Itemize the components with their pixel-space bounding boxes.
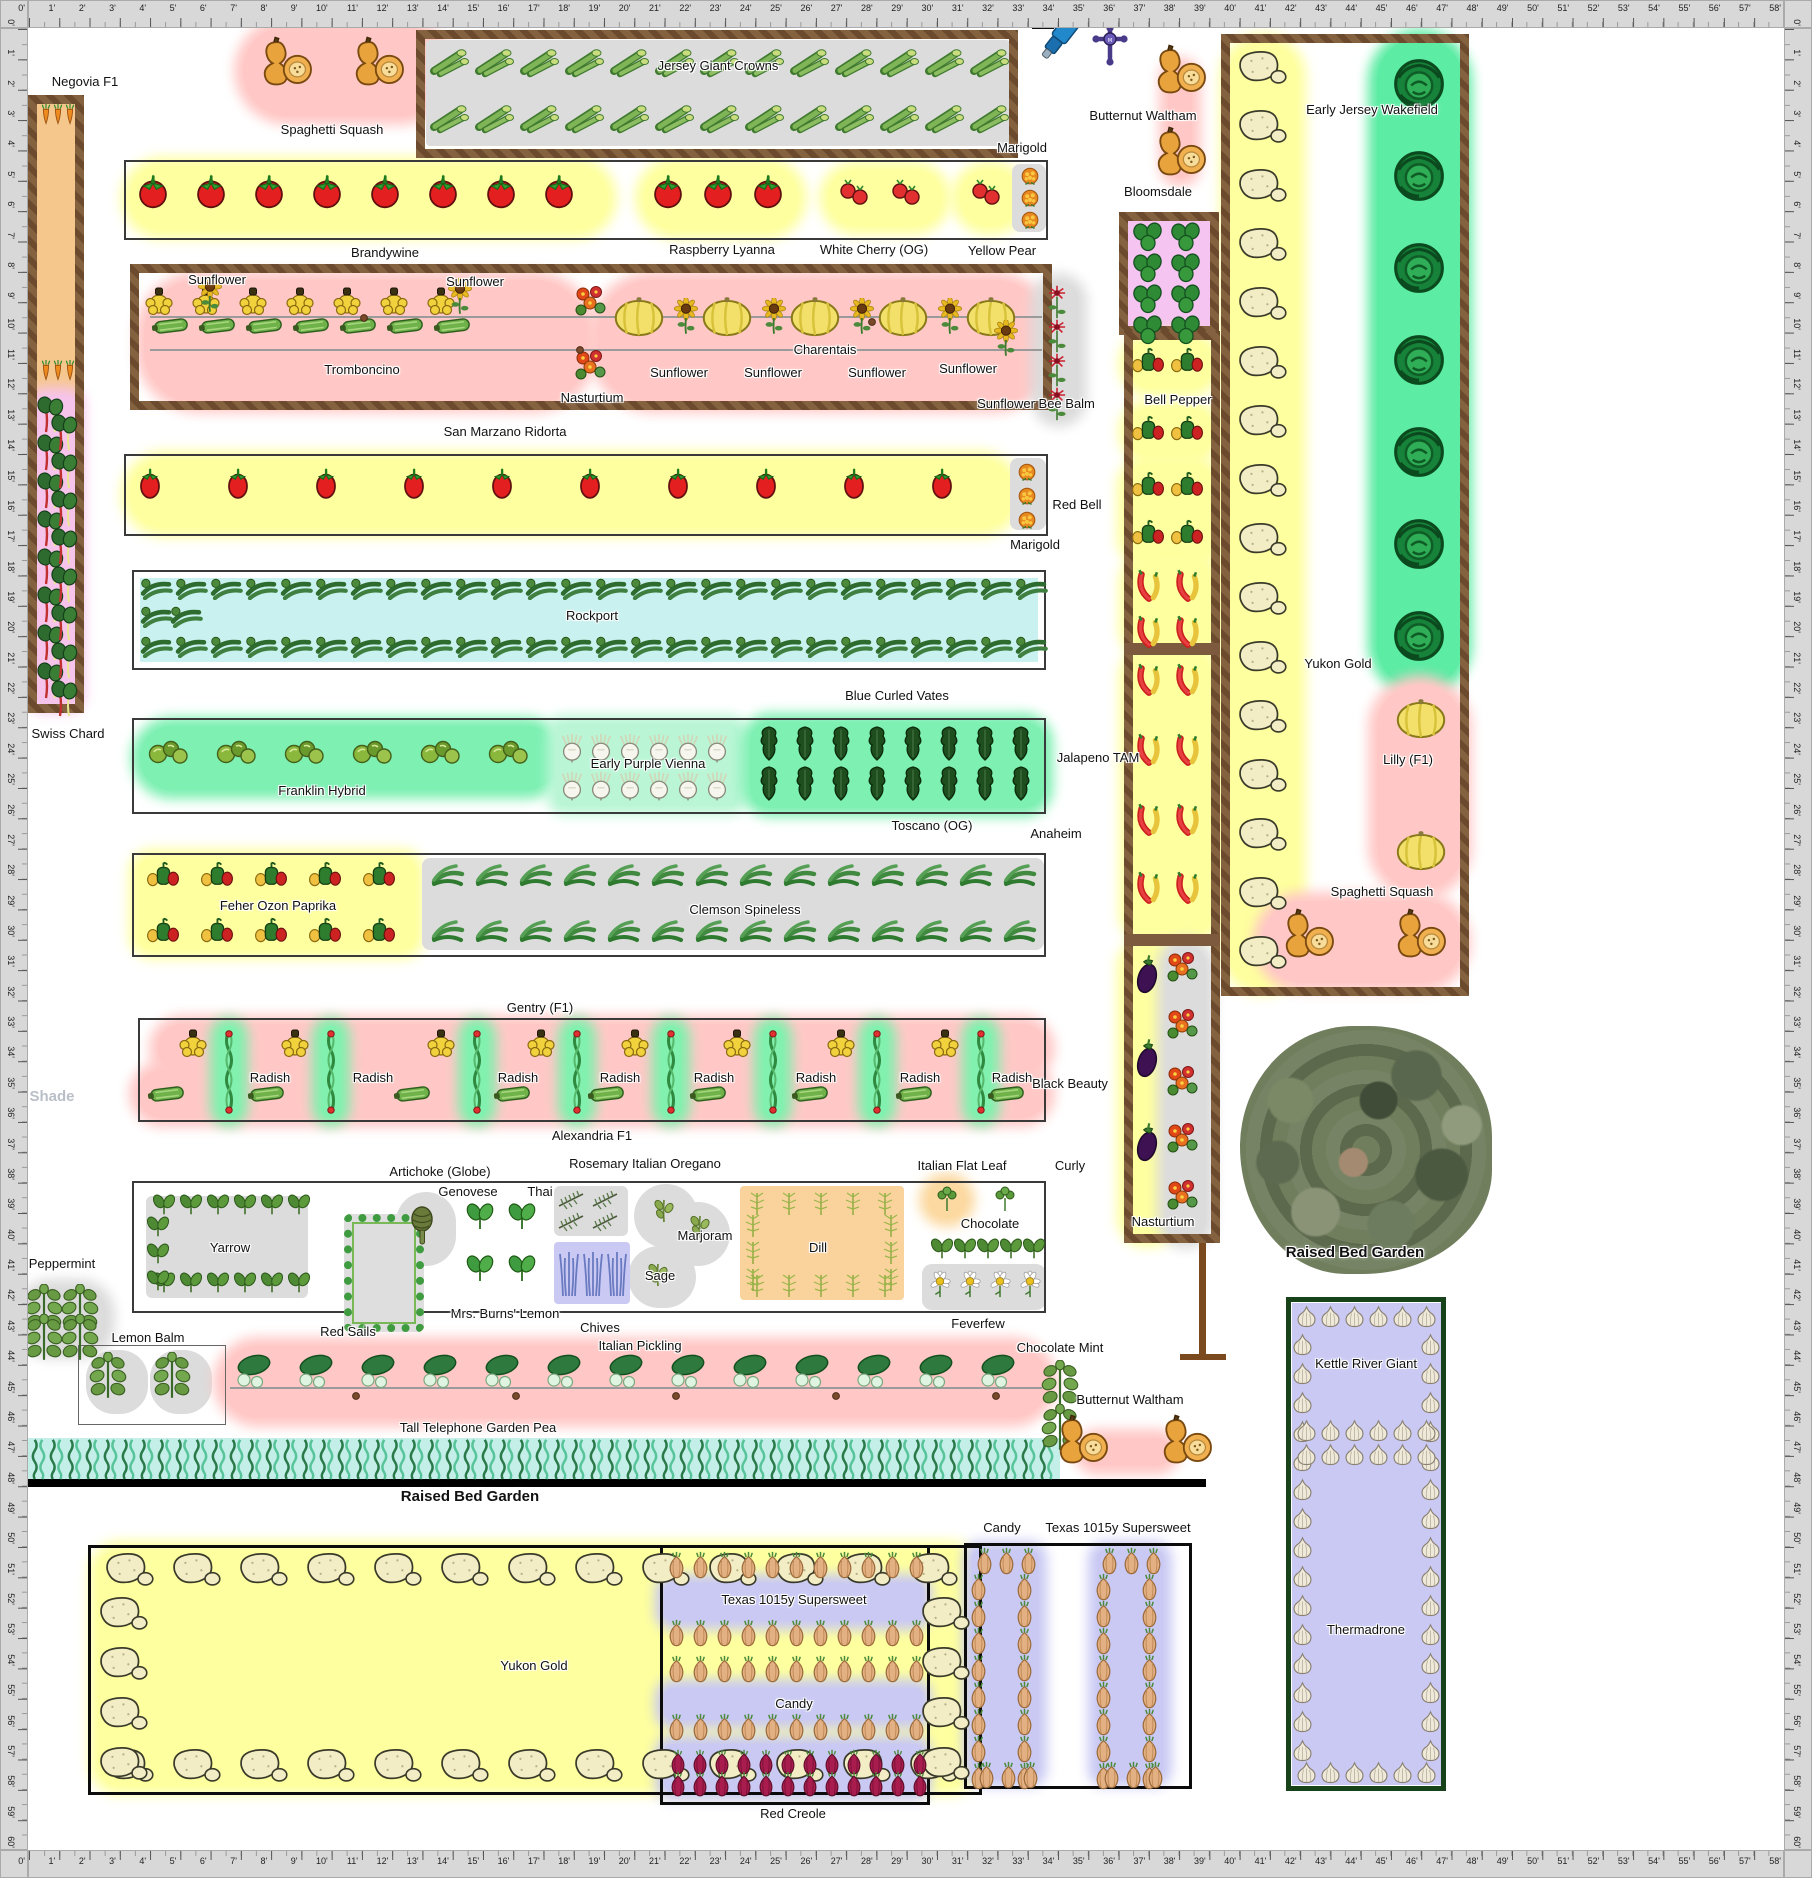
ruler-tick-label: 11' xyxy=(347,1856,358,1866)
ruler-tick-label: 33' xyxy=(1012,3,1024,13)
onion-icon xyxy=(666,1618,687,1648)
kale-icon xyxy=(900,764,926,802)
ruler-tick-label: 44' xyxy=(6,1350,16,1362)
potato-icon xyxy=(100,1548,154,1590)
ruler-tick-label: 35' xyxy=(1073,3,1085,13)
ruler-tick-label: 35' xyxy=(1073,1856,1085,1866)
chili-icon xyxy=(1131,564,1167,606)
ruler-tick-label: 15' xyxy=(6,470,16,482)
kale-icon xyxy=(1008,764,1034,802)
chard-icon xyxy=(50,604,78,642)
onion-icon xyxy=(762,1712,783,1742)
label-alexandria: Alexandria F1 xyxy=(552,1128,632,1143)
ruler-tick-label: 56' xyxy=(1792,1715,1802,1727)
ruler-tick-label: 9' xyxy=(291,3,298,13)
ruler-tick-label: 39' xyxy=(1792,1199,1802,1211)
ruler-tick-label: 18' xyxy=(558,3,570,13)
ruler-tick-label: 31' xyxy=(952,3,964,13)
label-genovese: Genovese xyxy=(438,1184,497,1199)
garlic-icon xyxy=(1292,1506,1313,1531)
label-thai: Thai xyxy=(527,1184,552,1199)
ruler-tick-label: 24' xyxy=(740,1856,752,1866)
ruler-tick-label: 5' xyxy=(170,1856,177,1866)
label-candy-2: Candy xyxy=(983,1520,1021,1535)
ruler-tick-label: 22' xyxy=(679,3,691,13)
beebalm-icon xyxy=(1044,352,1070,388)
pea-icon xyxy=(948,1438,965,1480)
butternut-icon xyxy=(1150,44,1208,96)
asp-icon xyxy=(970,100,1010,134)
pea-icon xyxy=(642,1438,659,1480)
cuc-icon xyxy=(540,1354,582,1390)
ruler-tick-label: 54' xyxy=(1792,1654,1802,1666)
ruler-tick-label: 8' xyxy=(6,262,16,269)
ruler-tick-label: 51' xyxy=(1792,1563,1802,1575)
beebalm-icon xyxy=(1044,284,1070,320)
ruler-tick-label: 26' xyxy=(800,3,812,13)
onion-icon xyxy=(858,1712,879,1742)
ruler-tick-label: 31' xyxy=(1792,956,1802,968)
redonion-icon xyxy=(800,1770,820,1798)
cuc-icon xyxy=(230,1354,272,1390)
potato-icon xyxy=(94,1592,148,1634)
garlic-icon xyxy=(1368,1760,1389,1785)
ruler-tick-label: 30' xyxy=(922,1856,934,1866)
potato-icon xyxy=(569,1744,623,1786)
pepc-icon xyxy=(1170,346,1204,374)
ruler-tick-label: 0' xyxy=(18,3,25,13)
onion-icon xyxy=(834,1618,855,1648)
onion-icon xyxy=(786,1550,807,1580)
bean-icon xyxy=(873,634,909,658)
ruler-tick-label: 12' xyxy=(377,1856,389,1866)
garlic-icon xyxy=(1416,1760,1437,1785)
pepc-icon xyxy=(1131,346,1165,374)
pea-icon xyxy=(534,1438,551,1480)
ruler-tick-label: 59' xyxy=(6,1806,16,1818)
ruler-tick-label: 18' xyxy=(1792,561,1802,573)
kale-icon xyxy=(828,764,854,802)
melon-icon xyxy=(700,296,754,340)
sunf-icon xyxy=(992,320,1020,358)
garlic-icon xyxy=(1292,1535,1313,1560)
ruler-tick-label: 57' xyxy=(1739,3,1751,13)
onion-icon xyxy=(762,1550,783,1580)
cuc-icon xyxy=(664,1354,706,1390)
label-chocolate-mint: Chocolate Mint xyxy=(1017,1340,1104,1355)
pepc-icon xyxy=(362,916,396,944)
label-nasturtium-1: Nasturtium xyxy=(561,390,624,405)
ruler-tick-label: 52' xyxy=(1588,1856,1600,1866)
plum-icon xyxy=(485,464,519,502)
ruler-tick-label: 31' xyxy=(6,956,16,968)
ruler-tick-label: 10' xyxy=(316,3,328,13)
pea-icon xyxy=(840,1438,857,1480)
ruler-tick-label: 20' xyxy=(6,622,16,634)
spinach-icon xyxy=(1132,222,1164,252)
label-black-beauty: Black Beauty xyxy=(1032,1076,1108,1091)
ruler-tick-label: 13' xyxy=(6,409,16,421)
ruler-tick-label: 14' xyxy=(6,439,16,451)
chard-icon xyxy=(50,566,78,604)
ruler-tick-label: 25' xyxy=(770,1856,782,1866)
pea-icon xyxy=(1002,1438,1019,1480)
label-mrs-burns-lemon: Mrs. Burns' Lemon xyxy=(451,1306,560,1321)
leaf2-icon xyxy=(953,1236,977,1260)
label-radish-1: Radish xyxy=(250,1070,290,1085)
onion-icon xyxy=(666,1712,687,1742)
mint-icon xyxy=(1040,1360,1080,1408)
sunf-icon xyxy=(848,298,876,336)
okra-icon xyxy=(824,916,864,946)
ruler-tick-label: 12' xyxy=(377,3,389,13)
brus-icon xyxy=(352,738,394,768)
ruler-tick-label: 41' xyxy=(6,1259,16,1271)
label-red-sails: Red Sails xyxy=(320,1324,376,1339)
potato-icon xyxy=(301,1744,355,1786)
pea-icon xyxy=(84,1438,101,1480)
frond-icon xyxy=(740,1239,766,1265)
label-sunflower-5: Sunflower xyxy=(848,365,906,380)
ruler-tick-label: 36' xyxy=(1103,1856,1115,1866)
patty-icon xyxy=(176,1028,210,1058)
ruler-tick-label: 16' xyxy=(6,500,16,512)
zuc-icon xyxy=(197,312,239,338)
ruler-tick-label: 58' xyxy=(1769,1856,1781,1866)
basil-icon xyxy=(466,1202,494,1230)
label-candy-1: Candy xyxy=(775,1696,813,1711)
pea-icon xyxy=(966,1438,983,1480)
onion-icon xyxy=(714,1550,735,1580)
bean-icon xyxy=(768,576,804,600)
label-italian-pickling: Italian Pickling xyxy=(598,1338,681,1353)
potato-icon xyxy=(368,1548,422,1590)
pea-icon xyxy=(570,1438,587,1480)
ruler-tick-label: 44' xyxy=(1345,3,1357,13)
pea-icon xyxy=(822,1438,839,1480)
ruler-tick-label: 51' xyxy=(1557,1856,1569,1866)
ruler-tick-label: 26' xyxy=(800,1856,812,1866)
ruler-tick-label: 55' xyxy=(1678,3,1690,13)
ruler-tick-label: 40' xyxy=(1224,1856,1236,1866)
onion-icon xyxy=(1014,1599,1035,1629)
label-gentry: Gentry (F1) xyxy=(507,1000,573,1015)
ruler-tick-label: 53' xyxy=(1618,1856,1630,1866)
pea-icon xyxy=(732,1438,749,1480)
ruler-tick-label: 58' xyxy=(1769,3,1781,13)
garlic-icon xyxy=(1292,1361,1313,1386)
radstrip-icon xyxy=(870,1028,884,1116)
garlic-icon xyxy=(1296,1760,1317,1785)
sprig-icon xyxy=(650,1196,678,1224)
redonion-icon xyxy=(910,1770,930,1798)
radstrip-icon xyxy=(324,1028,338,1116)
ruler-tick-label: 27' xyxy=(831,1856,843,1866)
mint-icon xyxy=(24,1314,64,1362)
ruler-tick-label: 9' xyxy=(1792,293,1802,300)
tomato-icon xyxy=(367,172,403,210)
ruler-tick-label: 26' xyxy=(1792,804,1802,816)
kohl-icon xyxy=(587,768,615,802)
onion-icon xyxy=(1093,1707,1114,1737)
ruler-tick-label: 0' xyxy=(6,19,16,26)
potato-icon xyxy=(234,1744,288,1786)
garden-plan-area[interactable]: Negovia F1Spaghetti SquashJersey Giant C… xyxy=(28,28,1784,1850)
potato-icon xyxy=(435,1548,489,1590)
potato-icon xyxy=(1233,636,1287,678)
label-radish-4: Radish xyxy=(600,1070,640,1085)
asp-icon xyxy=(610,100,650,134)
label-nasturtium-2: Nasturtium xyxy=(1132,1214,1195,1229)
ruler-tick-label: 16' xyxy=(498,3,510,13)
eggp-icon xyxy=(1130,952,1164,996)
bean-icon xyxy=(383,634,419,658)
ruler-tick-label: 32' xyxy=(1792,986,1802,998)
bean-icon xyxy=(453,576,489,600)
cuc-icon xyxy=(602,1354,644,1390)
onion-icon xyxy=(968,1653,989,1683)
pepc-icon xyxy=(1170,414,1204,442)
frond-icon xyxy=(808,1272,834,1298)
kohl-icon xyxy=(703,768,731,802)
bean-icon xyxy=(348,634,384,658)
label-jalapeno-tam: Jalapeno TAM xyxy=(1057,750,1140,765)
ruler-tick-label: 47' xyxy=(1436,1856,1448,1866)
onion-icon xyxy=(1093,1599,1114,1629)
marig-icon xyxy=(1019,188,1041,210)
patty-icon xyxy=(618,1028,652,1058)
tomato-icon xyxy=(425,172,461,210)
pea-icon xyxy=(48,1438,65,1480)
potato-icon xyxy=(234,1548,288,1590)
onion-icon xyxy=(1093,1653,1114,1683)
tomato-icon xyxy=(700,172,736,210)
label-shade: Shade xyxy=(29,1088,74,1105)
ruler-tick-label: 44' xyxy=(1345,1856,1357,1866)
onion-icon xyxy=(858,1550,879,1580)
leaf2-icon xyxy=(152,1192,176,1216)
ruler-tick-label: 9' xyxy=(6,293,16,300)
onion-icon xyxy=(762,1654,783,1684)
kale-icon xyxy=(828,724,854,762)
ruler-tick-label: 60' xyxy=(6,1836,16,1848)
label-butternut-waltham-top: Butternut Waltham xyxy=(1089,108,1196,123)
onion-icon xyxy=(1139,1572,1160,1602)
pea-icon xyxy=(876,1438,893,1480)
asp-icon xyxy=(880,44,920,78)
label-clemson-spineless: Clemson Spineless xyxy=(689,902,800,917)
pea-icon xyxy=(444,1438,461,1480)
tomato-icon xyxy=(541,172,577,210)
pea-icon xyxy=(282,1438,299,1480)
frond-icon xyxy=(878,1212,904,1238)
ruler-tick-label: 38' xyxy=(6,1168,16,1180)
label-early-purple-vienna: Early Purple Vienna xyxy=(591,756,706,771)
pea-icon xyxy=(930,1438,947,1480)
ruler-tick-label: 26' xyxy=(6,804,16,816)
pea-icon xyxy=(210,1438,227,1480)
label-marjoram: Marjoram xyxy=(678,1228,733,1243)
garlic-icon xyxy=(1392,1418,1413,1443)
potato-icon xyxy=(94,1742,148,1784)
chili-icon xyxy=(1131,610,1167,652)
brus-icon xyxy=(148,738,190,768)
ruler-tick-label: 42' xyxy=(6,1290,16,1302)
ruler-tick-label: 34' xyxy=(1043,3,1055,13)
label-tromboncino: Tromboncino xyxy=(324,362,399,377)
onion-icon xyxy=(690,1618,711,1648)
okra-icon xyxy=(912,916,952,946)
label-tall-telephone-garden-pea: Tall Telephone Garden Pea xyxy=(400,1420,557,1435)
redonion-icon xyxy=(888,1770,908,1798)
label-rosemary-italian-oregano: Rosemary Italian Oregano xyxy=(569,1156,721,1171)
label-raspberry-lyanna: Raspberry Lyanna xyxy=(669,242,775,257)
garlic-icon xyxy=(1420,1361,1441,1386)
melon-icon xyxy=(788,296,842,340)
label-italian-flat-leaf: Italian Flat Leaf xyxy=(918,1158,1007,1173)
garlic-icon xyxy=(1392,1760,1413,1785)
ruler-tick-label: 34' xyxy=(6,1047,16,1059)
ruler-tick-label: 23' xyxy=(6,713,16,725)
daisy-icon xyxy=(1016,1270,1044,1300)
ruler-tick-label: 8' xyxy=(1792,262,1802,269)
parsley-icon xyxy=(992,1186,1018,1212)
chili-icon xyxy=(1131,658,1167,700)
kale-icon xyxy=(792,724,818,762)
potato-icon xyxy=(167,1548,221,1590)
garlic-icon xyxy=(1420,1709,1441,1734)
ruler-tick-label: 53' xyxy=(1618,3,1630,13)
garlic-icon xyxy=(1420,1535,1441,1560)
ruler-tick-label: 21' xyxy=(649,1856,661,1866)
ruler-tick-label: 5' xyxy=(170,3,177,13)
ruler-tick-label: 23' xyxy=(710,3,722,13)
bean-icon xyxy=(558,576,594,600)
label-marigold-top: Marigold xyxy=(997,140,1047,155)
asp-icon xyxy=(655,100,695,134)
chard-icon xyxy=(50,414,78,452)
ruler-tick-label: 58' xyxy=(1792,1776,1802,1788)
ruler-tick-label: 33' xyxy=(1012,1856,1024,1866)
onion-icon xyxy=(738,1654,759,1684)
valve-icon xyxy=(1092,24,1128,66)
kale-icon xyxy=(936,764,962,802)
kohl-icon xyxy=(558,768,586,802)
asp-icon xyxy=(475,100,515,134)
pea-icon xyxy=(1020,1438,1037,1480)
okra-icon xyxy=(912,860,952,890)
asp-icon xyxy=(520,100,560,134)
garlic-icon xyxy=(1420,1332,1441,1357)
ruler-tick-label: 4' xyxy=(139,3,146,13)
onion-icon xyxy=(786,1654,807,1684)
onion-icon xyxy=(968,1599,989,1629)
asp-icon xyxy=(925,44,965,78)
garlic-icon xyxy=(1368,1442,1389,1467)
bed-mid-column xyxy=(1124,331,1220,1243)
potato-icon xyxy=(167,1744,221,1786)
ruler-tick-label: 39' xyxy=(1194,3,1206,13)
chili-icon xyxy=(1170,658,1206,700)
bean-icon xyxy=(978,634,1014,658)
ruler-tick-label: 20' xyxy=(1792,622,1802,634)
ruler-tick-label: 34' xyxy=(1043,1856,1055,1866)
cuc-icon xyxy=(292,1354,334,1390)
label-yukon-gold-right: Yukon Gold xyxy=(1304,656,1371,671)
ruler-tick-label: 46' xyxy=(6,1411,16,1423)
kohl-icon xyxy=(558,730,586,764)
ruler-tick-label: 30' xyxy=(6,925,16,937)
ruler-tick-label: 7' xyxy=(230,1856,237,1866)
ruler-tick-label: 54' xyxy=(6,1654,16,1666)
pepc-icon xyxy=(254,916,288,944)
ruler-tick-label: 38' xyxy=(1164,3,1176,13)
marig-icon xyxy=(1016,462,1038,484)
frond-icon xyxy=(878,1239,904,1265)
ruler-tick-label: 43' xyxy=(1792,1320,1802,1332)
ruler-tick-label: 12' xyxy=(1792,379,1802,391)
cuc-icon xyxy=(478,1354,520,1390)
onion-icon xyxy=(690,1550,711,1580)
onion-icon xyxy=(666,1654,687,1684)
ruler-tick-label: 56' xyxy=(1709,1856,1721,1866)
onion-icon xyxy=(906,1550,927,1580)
leaf2-icon xyxy=(206,1192,230,1216)
cuc-icon xyxy=(850,1354,892,1390)
ruler-tick-label: 19' xyxy=(6,591,16,603)
ruler-tick-label: 1' xyxy=(49,1856,56,1866)
onion-icon xyxy=(690,1712,711,1742)
garden-planner-canvas[interactable]: Negovia F1Spaghetti SquashJersey Giant C… xyxy=(0,0,1812,1878)
onion-icon xyxy=(1101,1760,1122,1790)
ruler-tick-label: 36' xyxy=(1792,1107,1802,1119)
okra-icon xyxy=(868,860,908,890)
ruler-tick-label: 40' xyxy=(1224,3,1236,13)
label-radish-8: Radish xyxy=(992,1070,1032,1085)
garlic-icon xyxy=(1292,1709,1313,1734)
tomato-icon xyxy=(483,172,519,210)
onion-icon xyxy=(882,1654,903,1684)
onion-icon xyxy=(738,1618,759,1648)
onion-icon xyxy=(858,1654,879,1684)
onion-icon xyxy=(882,1712,903,1742)
bean-icon xyxy=(593,576,629,600)
dot-icon xyxy=(672,1392,680,1400)
pea-icon xyxy=(516,1438,533,1480)
ruler-tick-label: 23' xyxy=(1792,713,1802,725)
onion-icon xyxy=(1093,1626,1114,1656)
garlic-icon xyxy=(1320,1304,1341,1329)
frond-icon xyxy=(740,1266,766,1292)
bean-icon xyxy=(733,576,769,600)
onion-icon xyxy=(762,1618,783,1648)
asp-icon xyxy=(970,44,1010,78)
onion-icon xyxy=(1145,1760,1166,1790)
ruler-tick-label: 49' xyxy=(1792,1502,1802,1514)
onion-icon xyxy=(906,1712,927,1742)
potato-icon xyxy=(1233,46,1287,88)
line xyxy=(1180,1354,1226,1360)
bean-icon xyxy=(838,634,874,658)
cuc-icon xyxy=(974,1354,1016,1390)
label-spaghetti-squash-right: Spaghetti Squash xyxy=(1331,884,1434,899)
ruler-tick-label: 1' xyxy=(1792,50,1802,57)
label-spaghetti-squash-top: Spaghetti Squash xyxy=(281,122,384,137)
leaf2-icon xyxy=(146,1241,170,1265)
ruler-tick-label: 45' xyxy=(1376,3,1388,13)
pepc-icon xyxy=(146,860,180,888)
pea-icon xyxy=(786,1438,803,1480)
